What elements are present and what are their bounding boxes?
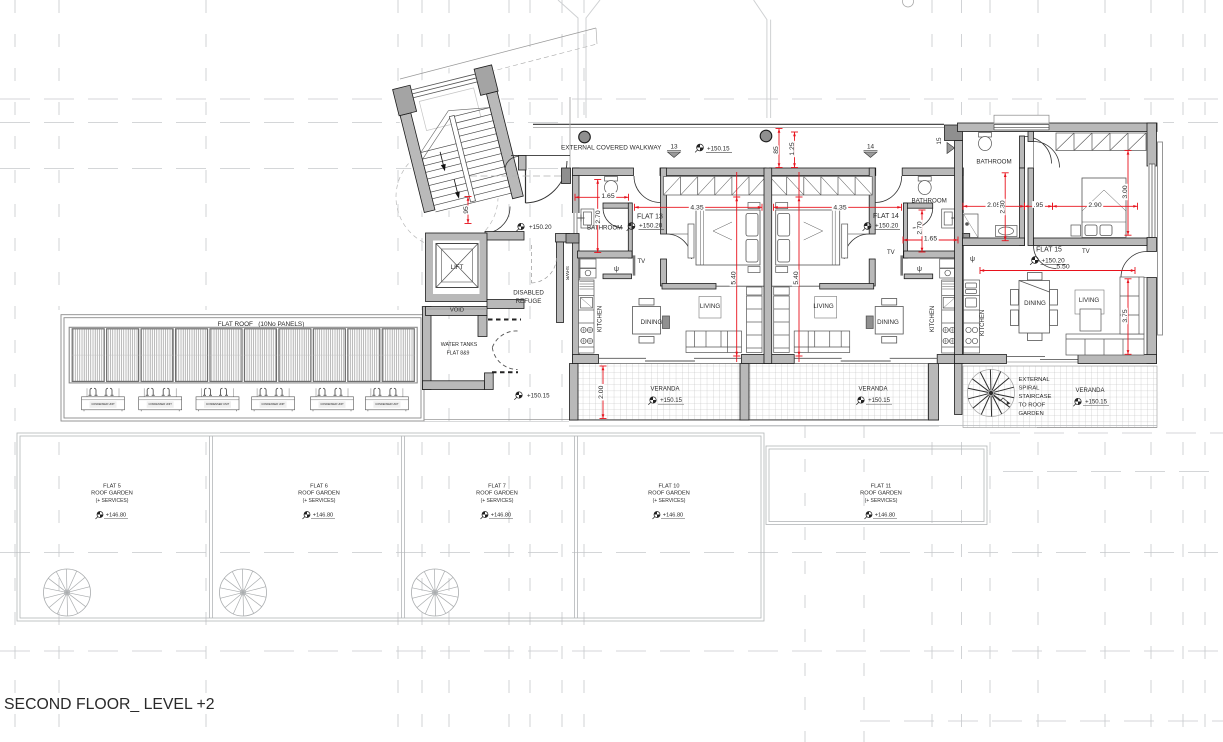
svg-text:+150.20: +150.20 — [875, 223, 899, 230]
svg-text:+146.80: +146.80 — [875, 513, 895, 519]
svg-text:+146.80: +146.80 — [313, 513, 333, 519]
svg-text:+150.20: +150.20 — [639, 223, 663, 230]
svg-text:+146.80: +146.80 — [106, 513, 126, 519]
svg-text:FLAT 6: FLAT 6 — [310, 484, 328, 490]
svg-text:KITCHEN: KITCHEN — [930, 306, 936, 332]
svg-text:4.35: 4.35 — [833, 205, 846, 212]
svg-text:95: 95 — [463, 206, 470, 214]
svg-text:3.75: 3.75 — [1122, 309, 1129, 322]
svg-text:2.70: 2.70 — [595, 210, 602, 223]
svg-text:+146.80: +146.80 — [491, 513, 511, 519]
svg-text:WATER TANKS: WATER TANKS — [441, 342, 478, 348]
svg-text:DISABLED: DISABLED — [513, 290, 544, 297]
svg-text:3.00: 3.00 — [1122, 185, 1129, 198]
svg-text:FLAT 5: FLAT 5 — [103, 484, 121, 490]
svg-text:FLAT 11: FLAT 11 — [871, 484, 892, 490]
svg-text:+150.15: +150.15 — [660, 398, 683, 404]
svg-text:ROOF GARDEN: ROOF GARDEN — [648, 491, 690, 497]
svg-text:ψ: ψ — [614, 266, 619, 273]
svg-text:CONDENSER UNIT: CONDENSER UNIT — [91, 402, 115, 406]
svg-text:ψ: ψ — [917, 266, 922, 273]
svg-text:2.70: 2.70 — [916, 221, 923, 234]
svg-text:(+ SERVICES): (+ SERVICES) — [303, 498, 336, 504]
svg-text:13: 13 — [670, 144, 678, 151]
svg-text:STAIRCASE: STAIRCASE — [1019, 394, 1052, 400]
svg-text:VERANDA: VERANDA — [650, 387, 679, 393]
svg-text:VOID: VOID — [450, 308, 464, 314]
svg-text:SECOND FLOOR_ LEVEL +2: SECOND FLOOR_ LEVEL +2 — [4, 696, 215, 713]
svg-text:1.65: 1.65 — [924, 236, 937, 243]
svg-text:+150.20: +150.20 — [529, 224, 552, 231]
svg-text:+150.15: +150.15 — [1085, 400, 1108, 406]
svg-text:SHWR: SHWR — [565, 266, 570, 281]
svg-text:TV: TV — [887, 250, 895, 256]
svg-text:LIVING: LIVING — [1079, 297, 1099, 304]
svg-text:14: 14 — [867, 144, 875, 151]
svg-text:TO ROOF: TO ROOF — [1019, 403, 1046, 409]
svg-text:DINING: DINING — [641, 319, 663, 326]
svg-text:+150.15: +150.15 — [527, 393, 550, 400]
svg-text:KITCHEN: KITCHEN — [980, 310, 986, 336]
svg-text:(+ SERVICES): (+ SERVICES) — [96, 498, 129, 504]
svg-text:CONDENSER UNIT: CONDENSER UNIT — [149, 402, 173, 406]
svg-text:LIVING: LIVING — [700, 303, 720, 310]
svg-text:EXTERNAL COVERED WALKWAY: EXTERNAL COVERED WALKWAY — [561, 145, 662, 152]
svg-text:EXTERNAL: EXTERNAL — [1019, 377, 1051, 383]
svg-text:CONDENSER UNIT: CONDENSER UNIT — [320, 402, 344, 406]
svg-text:.95: .95 — [1034, 202, 1044, 209]
svg-text:TV: TV — [1082, 249, 1090, 255]
svg-text:TV: TV — [638, 259, 646, 265]
svg-text:5.50: 5.50 — [1056, 263, 1069, 270]
svg-text:DINING: DINING — [1024, 300, 1046, 307]
svg-text:DINING: DINING — [877, 319, 899, 326]
svg-text:+150.15: +150.15 — [707, 146, 730, 153]
svg-text:ROOF GARDEN: ROOF GARDEN — [860, 491, 902, 497]
svg-text:ROOF GARDEN: ROOF GARDEN — [298, 491, 340, 497]
svg-text:+150.15: +150.15 — [868, 398, 891, 404]
svg-text:FLAT 13: FLAT 13 — [637, 214, 663, 221]
svg-text:(+ SERVICES): (+ SERVICES) — [653, 498, 686, 504]
svg-text:4.35: 4.35 — [690, 205, 703, 212]
svg-text:1.25: 1.25 — [789, 142, 796, 155]
svg-text:VERANDA: VERANDA — [1075, 388, 1104, 394]
svg-text:2.90: 2.90 — [1088, 202, 1101, 209]
svg-text:FLAT 10: FLAT 10 — [659, 484, 680, 490]
svg-text:CONDENSER UNIT: CONDENSER UNIT — [375, 402, 399, 406]
svg-text:FLAT 8&9: FLAT 8&9 — [447, 351, 470, 357]
svg-text:BATHROOM: BATHROOM — [587, 225, 622, 232]
svg-text:FLAT 14: FLAT 14 — [873, 213, 899, 220]
svg-text:FLAT 7: FLAT 7 — [488, 484, 506, 490]
svg-text:CONDENSER UNIT: CONDENSER UNIT — [206, 402, 230, 406]
svg-text:SPIRAL: SPIRAL — [1019, 386, 1041, 392]
svg-text:LIFT: LIFT — [451, 264, 464, 271]
svg-text:CONDENSER UNIT: CONDENSER UNIT — [261, 402, 285, 406]
svg-text:ROOF GARDEN: ROOF GARDEN — [476, 491, 518, 497]
svg-text:REFUGE: REFUGE — [516, 298, 542, 305]
svg-text:15: 15 — [936, 137, 943, 145]
svg-text:VERANDA: VERANDA — [858, 387, 887, 393]
svg-text:1.65: 1.65 — [601, 193, 614, 200]
svg-text:BATHROOM: BATHROOM — [976, 159, 1011, 166]
svg-text:BATHROOM: BATHROOM — [912, 198, 947, 205]
svg-text:(+ SERVICES): (+ SERVICES) — [481, 498, 514, 504]
svg-text:KITCHEN: KITCHEN — [598, 306, 604, 332]
svg-text:2.00: 2.00 — [598, 385, 605, 398]
svg-text:+146.80: +146.80 — [663, 513, 683, 519]
svg-text:LIVING: LIVING — [813, 303, 833, 310]
svg-text:85: 85 — [773, 146, 780, 154]
svg-text:ROOF GARDEN: ROOF GARDEN — [91, 491, 133, 497]
svg-text:GARDEN: GARDEN — [1019, 411, 1044, 417]
svg-text:ψ: ψ — [970, 256, 975, 263]
svg-text:FLAT 15: FLAT 15 — [1036, 247, 1062, 254]
svg-text:5.40: 5.40 — [793, 271, 800, 284]
svg-text:2.30: 2.30 — [999, 200, 1006, 213]
svg-text:5.40: 5.40 — [730, 271, 737, 284]
svg-text:(+ SERVICES): (+ SERVICES) — [865, 498, 898, 504]
